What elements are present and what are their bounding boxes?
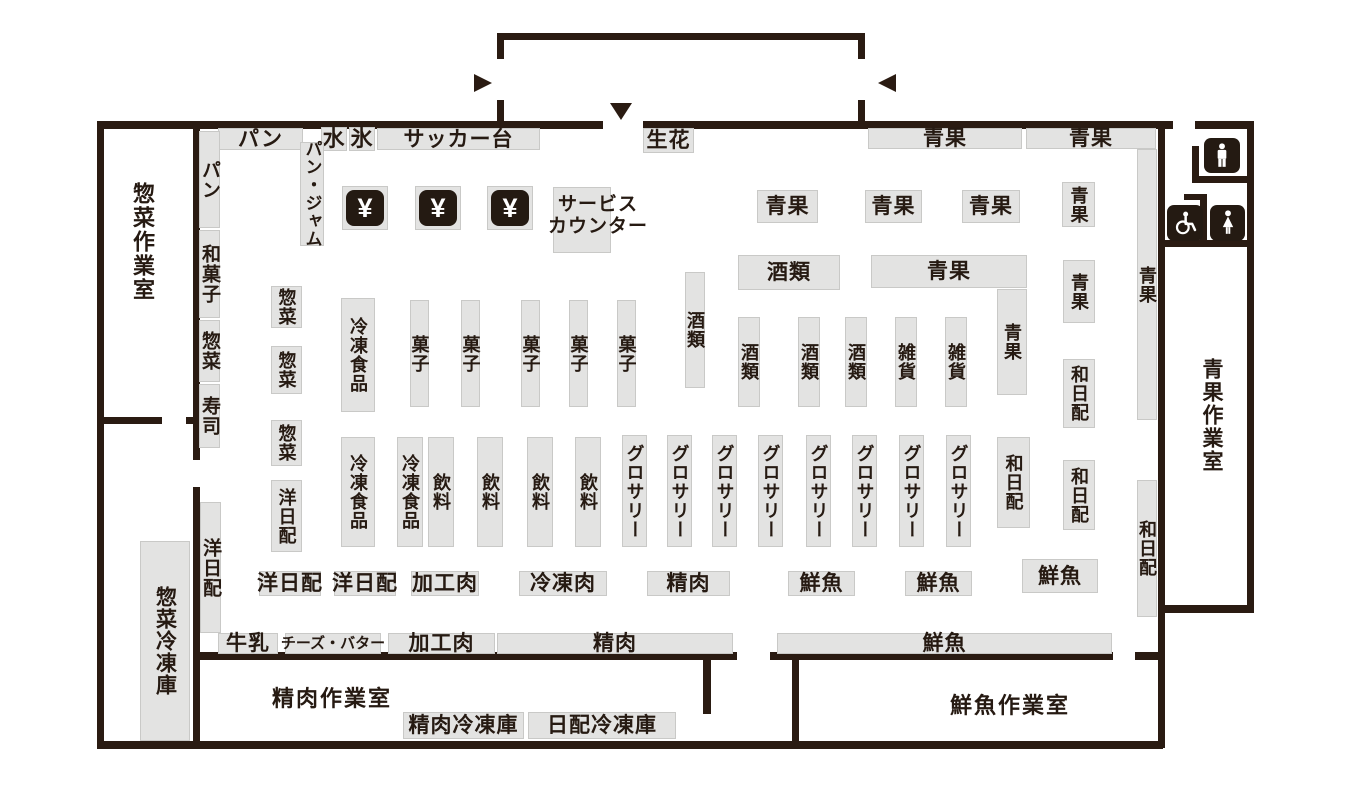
aisle-beverages: 飲料 (575, 437, 601, 547)
yen-register-icon: ¥ (487, 186, 533, 230)
shelf-bread: パン (218, 128, 303, 150)
label-fresh-fish: 鮮魚 (788, 571, 855, 596)
aisle-grocery: グロサリー (899, 435, 924, 547)
shelf-produce: 青果 (962, 190, 1020, 223)
wall-strip-japanese-daily: 和日配 (1137, 480, 1157, 617)
wall-souzai-room-bottom-b (186, 417, 200, 424)
souzai-freezer-room: 惣菜冷凍庫 (140, 541, 190, 741)
room-label-meat-workroom: 精肉作業室 (272, 681, 392, 713)
triangle-down-icon (610, 103, 632, 120)
aisle-grocery: グロサリー (946, 435, 971, 547)
aisle-grocery: グロサリー (622, 435, 647, 547)
shelf-bread-jam: パン・ジャム (300, 142, 324, 246)
wall-restroom-bottom (1164, 240, 1254, 247)
shelf-produce: 青果 (868, 128, 1022, 149)
store-floor-plan: パン 水 氷 サッカー台 生花 青果 青果 パン 和菓子 惣菜 寿司 洋日配 パ… (0, 0, 1350, 800)
aisle-frozen-food: 冷凍食品 (341, 437, 375, 547)
label-fresh-meat: 精肉 (647, 571, 730, 596)
aisle-beverages: 飲料 (477, 437, 503, 547)
shelf-flowers: 生花 (643, 128, 694, 153)
wall-seika-room-bottom (1158, 605, 1254, 613)
aisle-grocery: グロサリー (806, 435, 831, 547)
man-pictogram (1211, 143, 1233, 169)
shelf-ice: 氷 (349, 127, 375, 151)
shelf-produce: 青果 (1026, 128, 1156, 149)
shelf-produce: 青果 (871, 255, 1027, 288)
woman-pictogram (1217, 210, 1239, 236)
aisle-liquor: 酒類 (798, 317, 820, 407)
shelf-japanese-sweets: 和菓子 (199, 230, 220, 318)
label-processed-meat: 加工肉 (411, 571, 479, 596)
label-western-daily: 洋日配 (259, 571, 321, 596)
label-frozen-meat: 冷凍肉 (519, 571, 607, 596)
shelf-bread: パン (199, 131, 220, 228)
wall-meat-room-stub (703, 660, 711, 714)
shelf-produce: 青果 (757, 190, 818, 223)
yen-glyph: ¥ (419, 190, 457, 226)
shelf-produce: 青果 (865, 190, 922, 223)
wall-mens-divider-horizontal (1192, 176, 1249, 183)
aisle-japanese-daily: 和日配 (1063, 359, 1095, 428)
aisle-grocery: グロサリー (712, 435, 737, 547)
aisle-beverages: 飲料 (428, 437, 454, 547)
shelf-produce: 青果 (1062, 182, 1095, 227)
aisle-deli: 惣菜 (271, 346, 302, 394)
aisle-grocery: グロサリー (852, 435, 877, 547)
service-counter-label: サービス カウンター (548, 194, 648, 238)
wall-strip-produce: 青果 (1137, 149, 1157, 420)
shelf-fresh-meat: 精肉 (497, 633, 733, 654)
shelf-milk: 牛乳 (218, 633, 278, 654)
aisle-snacks: 菓子 (617, 300, 636, 407)
room-label-fish-workroom: 鮮魚作業室 (950, 688, 1070, 720)
shelf-processed-meat: 加工肉 (388, 633, 495, 654)
aisle-beverages: 飲料 (527, 437, 553, 547)
aisle-japanese-daily: 和日配 (997, 437, 1030, 528)
shelf-sushi: 寿司 (199, 384, 220, 448)
aisle-grocery: グロサリー (758, 435, 783, 547)
aisle-snacks: 菓子 (410, 300, 429, 407)
shelf-liquor: 酒類 (738, 255, 840, 290)
yen-register-icon: ¥ (415, 186, 461, 230)
label-western-daily: 洋日配 (334, 571, 396, 596)
yen-glyph: ¥ (491, 190, 529, 226)
wheelchair-pictogram (1172, 210, 1198, 236)
aisle-liquor: 酒類 (845, 317, 867, 407)
wheelchair-accessible-icon (1167, 205, 1203, 241)
label-fresh-fish: 鮮魚 (905, 571, 972, 596)
meat-freezer-room: 精肉冷凍庫 (403, 712, 524, 739)
aisle-liquor: 酒類 (685, 272, 705, 388)
vestibule-wall-left-stub (497, 33, 504, 59)
label-fresh-fish: 鮮魚 (1022, 559, 1098, 593)
shelf-western-daily: 洋日配 (200, 502, 221, 633)
wall-right-outer (1247, 121, 1254, 613)
shelf-produce: 青果 (997, 289, 1027, 395)
room-label-souzai-workroom: 惣菜作業室 (126, 182, 158, 302)
wall-top-restroom-segment (1195, 121, 1253, 129)
vestibule-wall-top (497, 33, 865, 40)
wall-souzai-room-bottom-a (97, 417, 162, 424)
wall-inner-left-lower (193, 487, 200, 748)
shelf-produce: 青果 (1063, 260, 1095, 323)
yen-glyph: ¥ (346, 190, 384, 226)
aisle-deli: 惣菜 (271, 286, 302, 328)
shelf-cheese-butter: チーズ・バター (285, 633, 381, 654)
aisle-frozen-food: 冷凍食品 (397, 437, 423, 547)
yen-register-icon: ¥ (342, 186, 388, 230)
aisle-liquor: 酒類 (738, 317, 760, 407)
aisle-japanese-daily: 和日配 (1063, 460, 1095, 530)
wall-fish-room-top-right (1135, 652, 1163, 660)
wall-left-outer (97, 121, 104, 748)
room-label-produce-workroom: 青果作業室 (1196, 358, 1226, 473)
wall-bottom-outer (97, 741, 1163, 749)
aisle-snacks: 菓子 (461, 300, 480, 407)
mens-restroom-icon (1204, 138, 1240, 173)
triangle-left-icon (878, 74, 896, 92)
aisle-snacks: 菓子 (569, 300, 588, 407)
aisle-snacks: 菓子 (521, 300, 540, 407)
vestibule-wall-right-stub (858, 33, 865, 59)
daily-freezer-room: 日配冷凍庫 (528, 712, 676, 739)
aisle-sundries: 雑貨 (895, 317, 917, 407)
aisle-sundries: 雑貨 (945, 317, 967, 407)
shelf-fresh-fish: 鮮魚 (777, 633, 1112, 654)
aisle-frozen-food: 冷凍食品 (341, 298, 375, 412)
aisle-western-daily: 洋日配 (271, 480, 302, 552)
wall-fish-room-left (792, 657, 799, 747)
womens-restroom-icon (1210, 205, 1245, 241)
shelf-water: 水 (321, 127, 347, 151)
shelf-deli: 惣菜 (199, 320, 220, 382)
triangle-right-icon (474, 74, 492, 92)
aisle-grocery: グロサリー (667, 435, 692, 547)
shelf-bagging-table: サッカー台 (377, 128, 540, 150)
aisle-deli: 惣菜 (271, 420, 302, 466)
